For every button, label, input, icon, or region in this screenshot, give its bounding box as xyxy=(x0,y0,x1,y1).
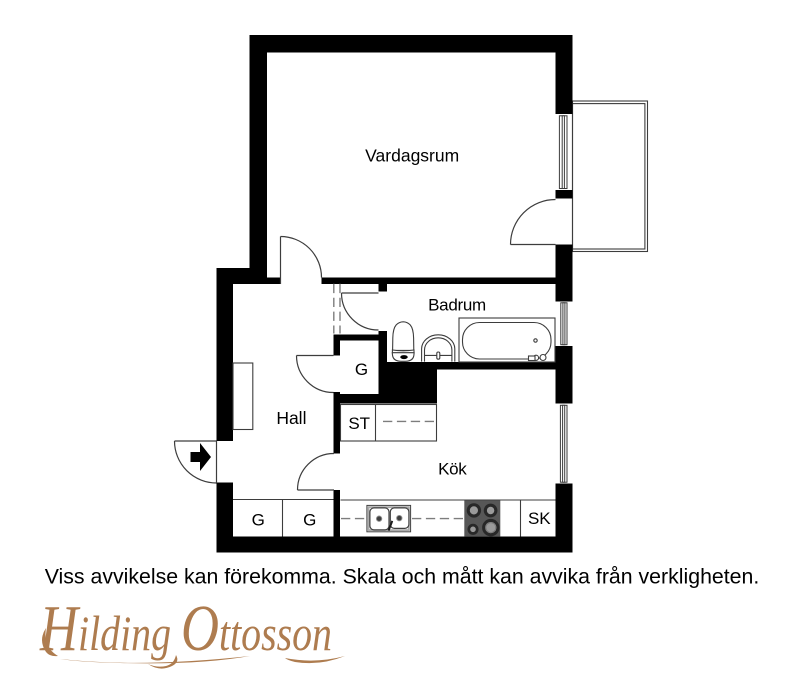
svg-text:Vardagsrum: Vardagsrum xyxy=(365,146,459,166)
svg-text:G: G xyxy=(252,511,265,530)
svg-text:Kök: Kök xyxy=(438,460,467,479)
svg-text:ST: ST xyxy=(348,414,370,433)
svg-text:SK: SK xyxy=(528,509,551,528)
svg-text:G: G xyxy=(303,511,316,530)
svg-text:Hall: Hall xyxy=(276,408,306,428)
svg-text:Viss avvikelse kan förekomma.: Viss avvikelse kan förekomma. Skala och … xyxy=(45,565,760,589)
svg-text:G: G xyxy=(355,360,368,379)
svg-text:Badrum: Badrum xyxy=(428,295,486,314)
